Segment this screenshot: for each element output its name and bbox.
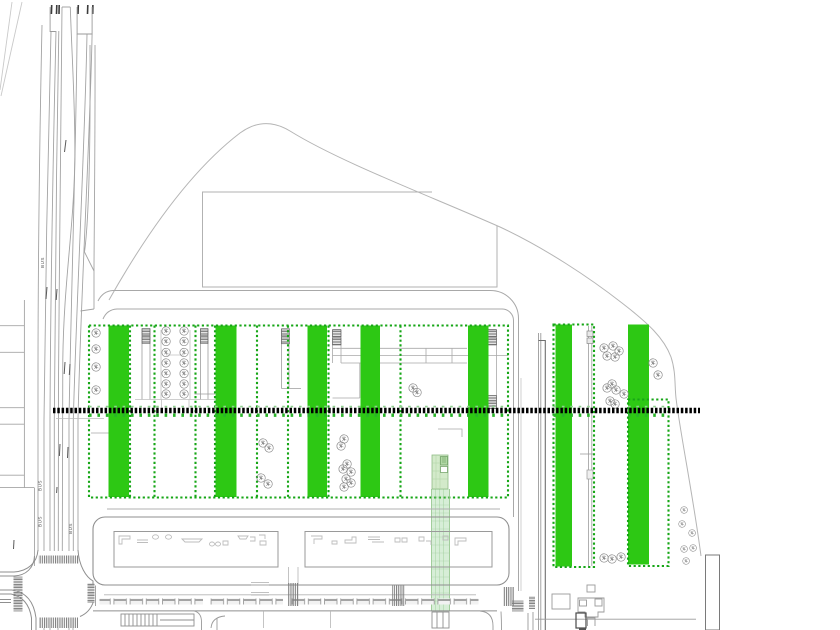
svg-text:BUS: BUS	[68, 523, 73, 534]
svg-text:BUS: BUS	[38, 516, 43, 527]
svg-text:BUS: BUS	[38, 480, 43, 491]
svg-text:BUS: BUS	[40, 257, 45, 268]
